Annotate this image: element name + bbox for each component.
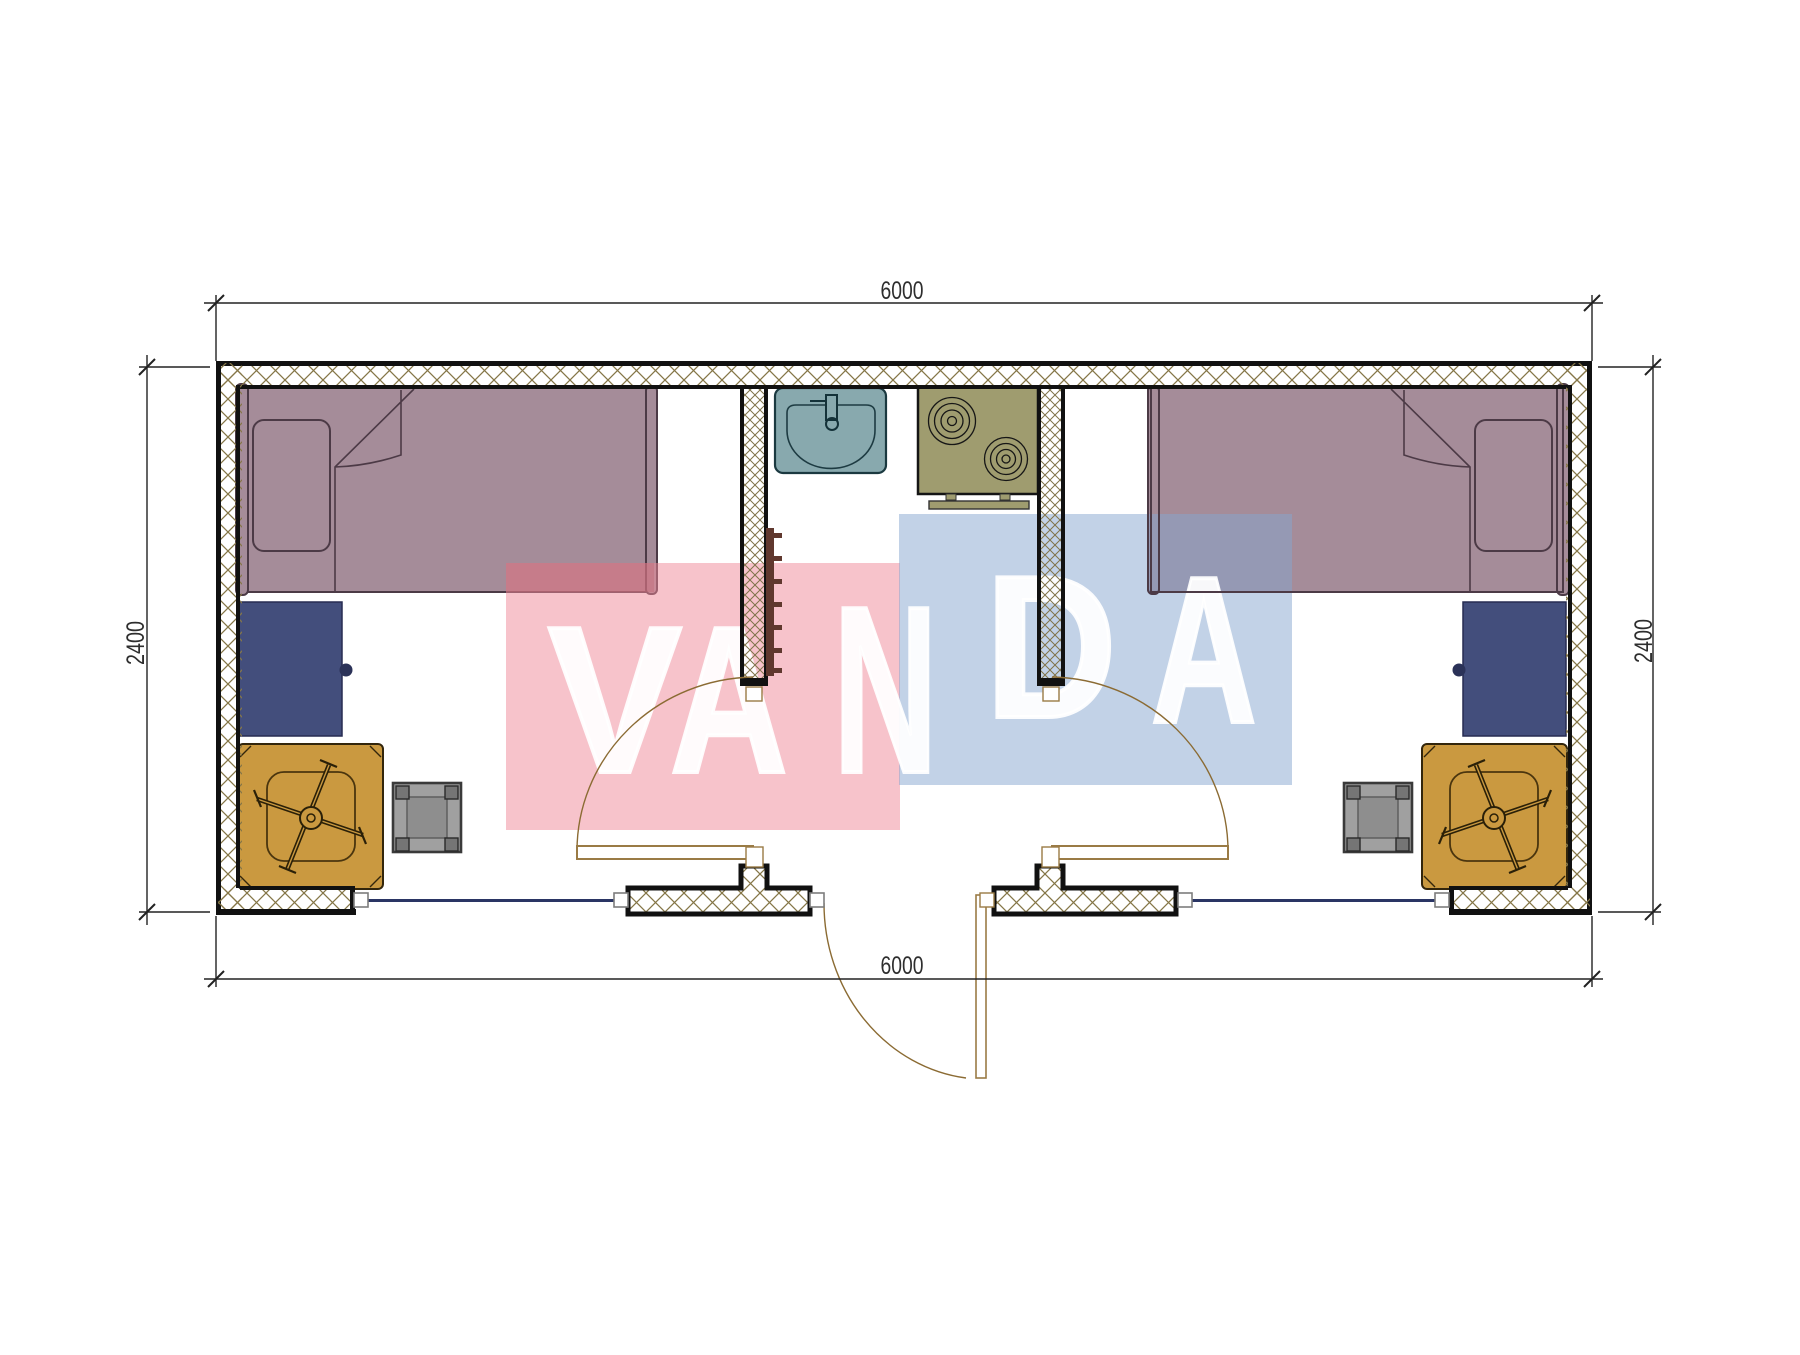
svg-text:V: V (548, 584, 682, 817)
svg-text:2400: 2400 (1630, 619, 1658, 663)
svg-text:2400: 2400 (122, 621, 150, 665)
svg-text:N: N (833, 557, 938, 823)
svg-text:6000: 6000 (881, 952, 924, 980)
svg-text:A: A (1151, 534, 1257, 767)
svg-text:6000: 6000 (881, 277, 924, 305)
